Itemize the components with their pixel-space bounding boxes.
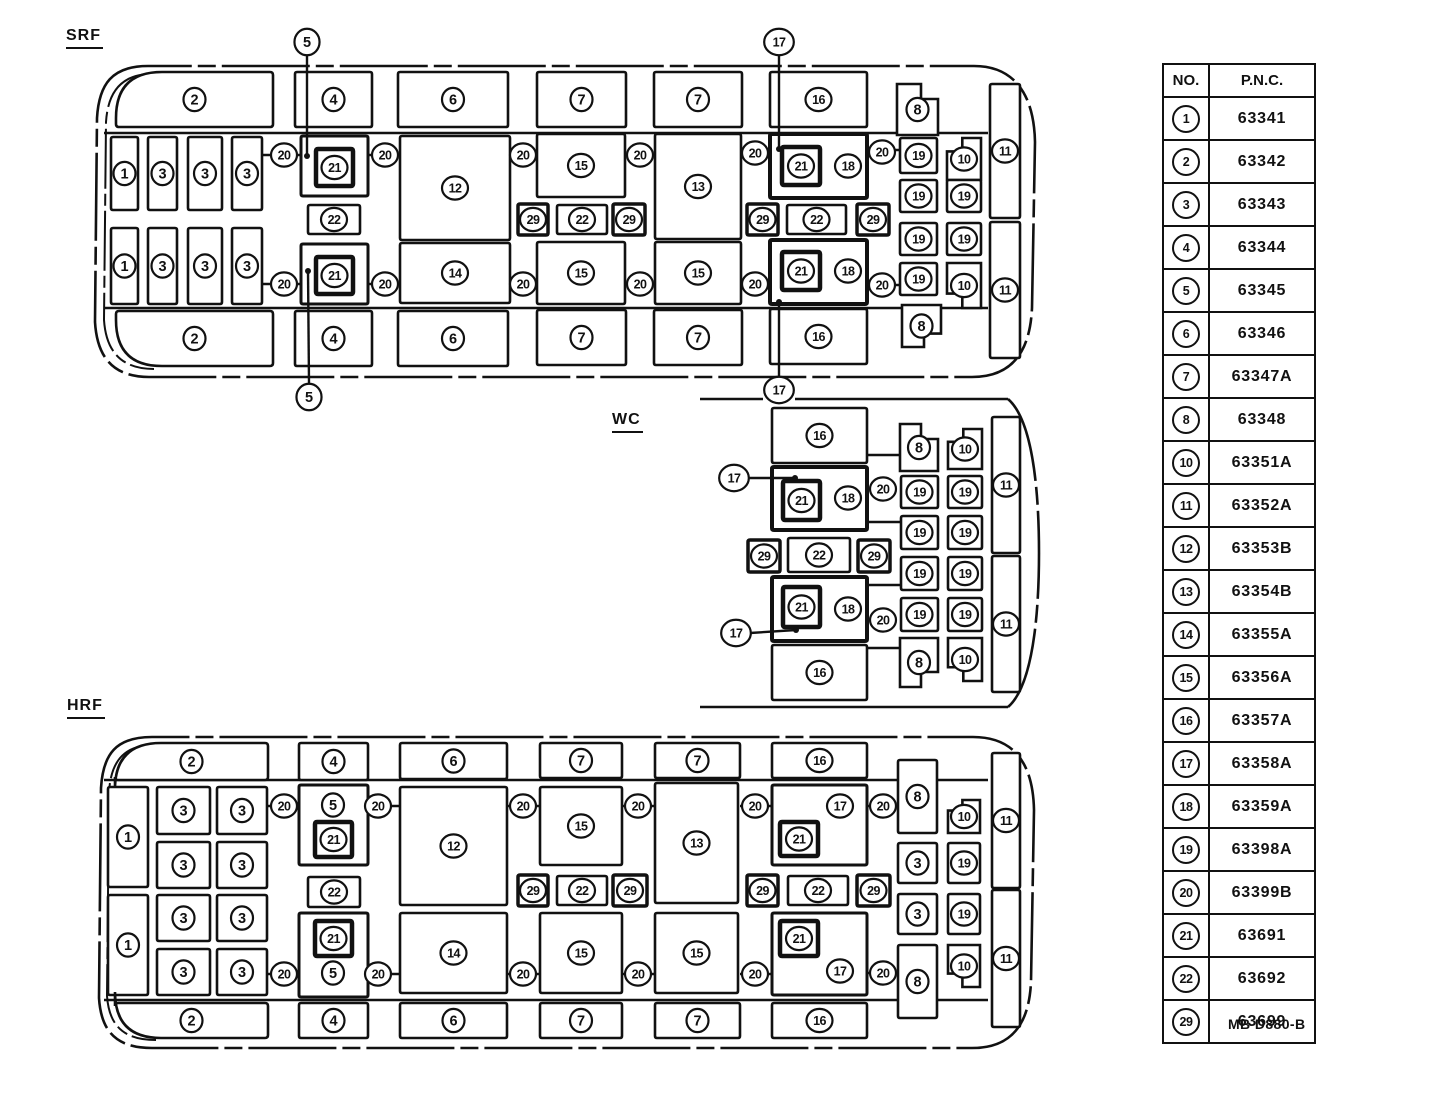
svg-text:6: 6 — [449, 1013, 457, 1029]
part-marker-12: 12 — [441, 834, 467, 857]
table-row: 263342 — [1163, 140, 1315, 183]
svg-text:5: 5 — [329, 966, 337, 982]
part-marker-8: 8 — [907, 785, 929, 808]
part-marker-16: 16 — [806, 325, 832, 348]
part-marker-2: 2 — [184, 88, 206, 111]
part-marker-21: 21 — [788, 259, 814, 282]
part-marker-3: 3 — [231, 906, 253, 929]
svg-text:22: 22 — [576, 884, 589, 898]
circled-number: 4 — [1172, 234, 1200, 262]
no-cell: 20 — [1163, 871, 1209, 914]
circled-number: 8 — [1172, 406, 1200, 434]
svg-text:19: 19 — [912, 272, 925, 286]
table-row: 2063399B — [1163, 871, 1315, 914]
part-marker-16: 16 — [807, 749, 833, 772]
pnc-cell: 63353B — [1209, 527, 1315, 570]
part-marker-19: 19 — [907, 562, 933, 585]
pnc-cell: 63346 — [1209, 312, 1315, 355]
svg-text:13: 13 — [690, 836, 703, 850]
part-marker-3: 3 — [231, 799, 253, 822]
part-marker-12: 12 — [442, 176, 468, 199]
svg-text:11: 11 — [999, 283, 1012, 297]
table-row: 163341 — [1163, 97, 1315, 140]
part-marker-2: 2 — [181, 1009, 203, 1032]
circled-number: 14 — [1172, 621, 1200, 649]
table-row: 763347A — [1163, 355, 1315, 398]
part-marker-20: 20 — [625, 962, 651, 985]
part-marker-22: 22 — [806, 543, 832, 566]
part-marker-21: 21 — [786, 827, 812, 850]
svg-text:20: 20 — [379, 148, 392, 162]
circled-number: 2 — [1172, 148, 1200, 176]
part-marker-19: 19 — [952, 521, 978, 544]
col-header-no: NO. — [1163, 64, 1209, 97]
circled-number: 21 — [1172, 922, 1200, 950]
part-marker-19: 19 — [907, 480, 933, 503]
part-marker-20: 20 — [271, 962, 297, 985]
part-marker-29: 29 — [860, 208, 886, 231]
panel-label-srf: SRF — [66, 27, 103, 49]
svg-text:21: 21 — [795, 494, 808, 508]
table-row: 1263353B — [1163, 527, 1315, 570]
svg-text:10: 10 — [958, 279, 971, 293]
table-row: 1763358A — [1163, 742, 1315, 785]
part-marker-2: 2 — [181, 750, 203, 773]
part-marker-11: 11 — [993, 612, 1019, 635]
part-marker-21: 21 — [788, 154, 814, 177]
svg-text:3: 3 — [913, 907, 921, 923]
part-marker-19: 19 — [952, 562, 978, 585]
table-row: 1663357A — [1163, 699, 1315, 742]
svg-text:19: 19 — [959, 567, 972, 581]
part-marker-15: 15 — [568, 941, 594, 964]
part-marker-20: 20 — [869, 140, 895, 163]
part-marker-15: 15 — [568, 154, 594, 177]
svg-text:3: 3 — [179, 858, 187, 874]
svg-text:11: 11 — [1000, 617, 1013, 631]
svg-text:6: 6 — [449, 331, 457, 347]
pnc-cell: 63356A — [1209, 656, 1315, 699]
part-marker-3: 3 — [173, 906, 195, 929]
part-marker-21: 21 — [322, 264, 348, 287]
circled-number: 7 — [1172, 363, 1200, 391]
part-marker-21: 21 — [789, 595, 815, 618]
no-cell: 5 — [1163, 269, 1209, 312]
svg-text:3: 3 — [179, 803, 187, 819]
no-cell: 3 — [1163, 183, 1209, 226]
svg-text:6: 6 — [449, 92, 457, 108]
part-marker-4: 4 — [323, 88, 345, 111]
pnc-cell: 63355A — [1209, 613, 1315, 656]
svg-text:14: 14 — [449, 266, 462, 280]
part-marker-3: 3 — [152, 254, 174, 277]
pnc-cell: 63352A — [1209, 484, 1315, 527]
part-marker-3: 3 — [173, 853, 195, 876]
part-marker-20: 20 — [271, 143, 297, 166]
no-cell: 18 — [1163, 785, 1209, 828]
part-marker-20: 20 — [365, 794, 391, 817]
part-marker-22: 22 — [321, 208, 347, 231]
svg-text:21: 21 — [795, 600, 808, 614]
svg-text:20: 20 — [278, 148, 291, 162]
svg-text:18: 18 — [842, 264, 855, 278]
part-marker-6: 6 — [443, 1009, 465, 1032]
svg-text:10: 10 — [958, 810, 971, 824]
svg-text:3: 3 — [243, 166, 251, 182]
svg-text:1: 1 — [124, 830, 132, 846]
part-marker-20: 20 — [365, 962, 391, 985]
circled-number: 20 — [1172, 879, 1200, 907]
part-marker-19: 19 — [952, 603, 978, 626]
svg-text:16: 16 — [813, 429, 826, 443]
svg-text:3: 3 — [179, 965, 187, 981]
svg-text:16: 16 — [813, 754, 826, 768]
pnc-cell: 63341 — [1209, 97, 1315, 140]
svg-text:19: 19 — [958, 189, 971, 203]
svg-text:8: 8 — [915, 655, 923, 671]
svg-text:21: 21 — [793, 932, 806, 946]
svg-text:19: 19 — [912, 189, 925, 203]
part-marker-29: 29 — [520, 208, 546, 231]
svg-text:7: 7 — [694, 92, 702, 108]
part-marker-3: 3 — [231, 853, 253, 876]
part-marker-20: 20 — [870, 794, 896, 817]
svg-text:12: 12 — [447, 839, 460, 853]
svg-text:19: 19 — [959, 485, 972, 499]
svg-text:21: 21 — [327, 833, 340, 847]
part-marker-29: 29 — [751, 544, 777, 567]
part-marker-20: 20 — [869, 273, 895, 296]
svg-text:22: 22 — [812, 884, 825, 898]
svg-text:16: 16 — [812, 330, 825, 344]
svg-text:22: 22 — [810, 213, 823, 227]
panel-label-wc: WC — [612, 411, 643, 433]
svg-text:21: 21 — [328, 269, 341, 283]
svg-text:20: 20 — [372, 799, 385, 813]
svg-text:7: 7 — [694, 330, 702, 346]
svg-text:2: 2 — [187, 1013, 195, 1029]
svg-text:7: 7 — [577, 753, 585, 769]
circled-number: 12 — [1172, 535, 1200, 563]
svg-text:20: 20 — [749, 277, 762, 291]
svg-text:29: 29 — [756, 213, 769, 227]
svg-text:20: 20 — [632, 967, 645, 981]
svg-text:29: 29 — [527, 213, 540, 227]
part-marker-20: 20 — [372, 272, 398, 295]
part-marker-6: 6 — [443, 749, 465, 772]
table-row: 2163691 — [1163, 914, 1315, 957]
svg-text:3: 3 — [238, 965, 246, 981]
part-marker-17: 17 — [721, 620, 751, 646]
wc-panel: 1621292229211681019191919191919198101111… — [700, 399, 1039, 707]
svg-text:7: 7 — [577, 1013, 585, 1029]
part-marker-10: 10 — [951, 274, 977, 297]
pnc-cell: 63358A — [1209, 742, 1315, 785]
part-marker-19: 19 — [951, 902, 977, 925]
svg-text:20: 20 — [517, 967, 530, 981]
part-marker-20: 20 — [510, 962, 536, 985]
no-cell: 22 — [1163, 957, 1209, 1000]
no-cell: 21 — [1163, 914, 1209, 957]
svg-text:3: 3 — [201, 259, 209, 275]
part-marker-3: 3 — [173, 960, 195, 983]
drawing-code: MB D880-B — [1228, 1016, 1306, 1032]
part-marker-22: 22 — [321, 880, 347, 903]
svg-text:17: 17 — [834, 799, 847, 813]
svg-text:7: 7 — [693, 753, 701, 769]
part-marker-17: 17 — [764, 29, 794, 55]
srf-panel: 2467716813332112151321191011222922292922… — [95, 29, 1035, 410]
svg-text:8: 8 — [913, 974, 921, 990]
part-marker-11: 11 — [993, 809, 1019, 832]
svg-text:17: 17 — [728, 471, 741, 485]
svg-text:17: 17 — [834, 964, 847, 978]
svg-text:10: 10 — [958, 152, 971, 166]
part-marker-11: 11 — [992, 278, 1018, 301]
part-marker-21: 21 — [322, 156, 348, 179]
svg-text:20: 20 — [877, 966, 890, 980]
svg-text:3: 3 — [238, 911, 246, 927]
svg-text:19: 19 — [912, 232, 925, 246]
svg-text:21: 21 — [795, 264, 808, 278]
table-row: 1363354B — [1163, 570, 1315, 613]
table-row: 1163352A — [1163, 484, 1315, 527]
pnc-cell: 63345 — [1209, 269, 1315, 312]
svg-text:15: 15 — [575, 819, 588, 833]
part-marker-20: 20 — [271, 794, 297, 817]
svg-text:29: 29 — [624, 884, 637, 898]
svg-text:20: 20 — [517, 799, 530, 813]
svg-text:3: 3 — [238, 858, 246, 874]
no-cell: 19 — [1163, 828, 1209, 871]
no-cell: 8 — [1163, 398, 1209, 441]
part-marker-21: 21 — [321, 927, 347, 950]
no-cell: 10 — [1163, 441, 1209, 484]
svg-text:20: 20 — [278, 277, 291, 291]
part-marker-15: 15 — [685, 261, 711, 284]
part-marker-20: 20 — [627, 272, 653, 295]
part-marker-19: 19 — [951, 227, 977, 250]
table-row: 1863359A — [1163, 785, 1315, 828]
svg-text:15: 15 — [690, 946, 703, 960]
svg-text:11: 11 — [999, 144, 1012, 158]
part-marker-6: 6 — [442, 88, 464, 111]
part-marker-10: 10 — [951, 805, 977, 828]
part-marker-5: 5 — [294, 29, 319, 55]
svg-text:10: 10 — [958, 959, 971, 973]
part-marker-8: 8 — [908, 651, 930, 674]
pnc-cell: 63348 — [1209, 398, 1315, 441]
part-marker-19: 19 — [951, 184, 977, 207]
svg-text:3: 3 — [158, 259, 166, 275]
svg-text:7: 7 — [693, 1013, 701, 1029]
part-marker-20: 20 — [510, 143, 536, 166]
svg-text:15: 15 — [692, 266, 705, 280]
svg-text:19: 19 — [958, 232, 971, 246]
svg-text:22: 22 — [813, 548, 826, 562]
svg-text:20: 20 — [877, 799, 890, 813]
svg-text:4: 4 — [329, 331, 337, 347]
pnc-cell: 63342 — [1209, 140, 1315, 183]
circled-number: 13 — [1172, 578, 1200, 606]
part-marker-20: 20 — [742, 141, 768, 164]
part-marker-16: 16 — [807, 1009, 833, 1032]
svg-text:29: 29 — [758, 549, 771, 563]
svg-text:3: 3 — [201, 166, 209, 182]
svg-text:3: 3 — [158, 166, 166, 182]
svg-text:5: 5 — [305, 390, 313, 406]
table-row: 563345 — [1163, 269, 1315, 312]
part-marker-2: 2 — [184, 327, 206, 350]
part-marker-20: 20 — [625, 794, 651, 817]
part-marker-16: 16 — [807, 424, 833, 447]
part-marker-8: 8 — [907, 970, 929, 993]
svg-text:21: 21 — [795, 159, 808, 173]
svg-text:1: 1 — [120, 259, 128, 275]
svg-text:15: 15 — [575, 946, 588, 960]
svg-text:2: 2 — [187, 754, 195, 770]
part-marker-11: 11 — [992, 139, 1018, 162]
part-marker-19: 19 — [906, 227, 932, 250]
part-marker-5: 5 — [322, 961, 344, 984]
part-marker-10: 10 — [951, 954, 977, 977]
circled-number: 3 — [1172, 191, 1200, 219]
svg-text:19: 19 — [959, 608, 972, 622]
svg-text:8: 8 — [917, 319, 925, 335]
svg-text:20: 20 — [517, 148, 530, 162]
svg-text:29: 29 — [527, 884, 540, 898]
svg-text:19: 19 — [912, 149, 925, 163]
svg-text:7: 7 — [577, 92, 585, 108]
circled-number: 18 — [1172, 793, 1200, 821]
pnc-cell: 63398A — [1209, 828, 1315, 871]
svg-text:21: 21 — [793, 832, 806, 846]
part-marker-29: 29 — [861, 879, 887, 902]
svg-text:20: 20 — [877, 613, 890, 627]
pnc-table: NO. P.N.C. 16334126334236334346334456334… — [1162, 63, 1316, 1044]
svg-text:4: 4 — [329, 754, 337, 770]
svg-text:20: 20 — [517, 277, 530, 291]
part-marker-29: 29 — [750, 208, 776, 231]
part-marker-3: 3 — [231, 960, 253, 983]
part-marker-29: 29 — [520, 879, 546, 902]
no-cell: 4 — [1163, 226, 1209, 269]
part-marker-14: 14 — [441, 941, 467, 964]
svg-text:11: 11 — [1000, 952, 1013, 966]
part-marker-19: 19 — [952, 480, 978, 503]
svg-text:5: 5 — [303, 35, 311, 51]
svg-text:4: 4 — [329, 92, 337, 108]
no-cell: 12 — [1163, 527, 1209, 570]
svg-text:17: 17 — [730, 626, 743, 640]
circled-number: 22 — [1172, 965, 1200, 993]
circled-number: 19 — [1172, 836, 1200, 864]
no-cell: 14 — [1163, 613, 1209, 656]
no-cell: 17 — [1163, 742, 1209, 785]
part-marker-20: 20 — [870, 961, 896, 984]
svg-text:3: 3 — [238, 803, 246, 819]
svg-text:13: 13 — [692, 180, 705, 194]
svg-text:22: 22 — [328, 213, 341, 227]
part-marker-15: 15 — [568, 814, 594, 837]
part-marker-7: 7 — [570, 749, 592, 772]
svg-text:1: 1 — [124, 938, 132, 954]
svg-text:19: 19 — [913, 608, 926, 622]
svg-text:11: 11 — [1000, 478, 1013, 492]
part-marker-17: 17 — [827, 959, 853, 982]
part-marker-20: 20 — [627, 143, 653, 166]
part-marker-10: 10 — [952, 437, 978, 460]
part-marker-7: 7 — [571, 88, 593, 111]
no-cell: 29 — [1163, 1000, 1209, 1043]
svg-text:8: 8 — [915, 440, 923, 456]
part-marker-7: 7 — [571, 326, 593, 349]
part-marker-5: 5 — [322, 793, 344, 816]
part-marker-8: 8 — [908, 436, 930, 459]
part-marker-19: 19 — [907, 603, 933, 626]
part-marker-20: 20 — [742, 962, 768, 985]
svg-text:19: 19 — [913, 485, 926, 499]
part-marker-20: 20 — [372, 143, 398, 166]
svg-text:3: 3 — [179, 911, 187, 927]
svg-text:18: 18 — [842, 159, 855, 173]
part-marker-1: 1 — [117, 825, 139, 848]
svg-text:19: 19 — [958, 907, 971, 921]
svg-text:16: 16 — [813, 666, 826, 680]
circled-number: 1 — [1172, 105, 1200, 133]
svg-text:2: 2 — [190, 331, 198, 347]
pnc-cell: 63399B — [1209, 871, 1315, 914]
table-row: 1463355A — [1163, 613, 1315, 656]
svg-text:29: 29 — [867, 213, 880, 227]
part-marker-17: 17 — [719, 465, 749, 491]
svg-text:19: 19 — [913, 526, 926, 540]
svg-text:22: 22 — [328, 885, 341, 899]
pnc-cell: 63357A — [1209, 699, 1315, 742]
svg-text:20: 20 — [379, 277, 392, 291]
part-marker-22: 22 — [805, 879, 831, 902]
part-marker-17: 17 — [827, 794, 853, 817]
svg-text:20: 20 — [749, 799, 762, 813]
part-marker-3: 3 — [236, 162, 258, 185]
svg-text:21: 21 — [327, 932, 340, 946]
part-marker-3: 3 — [194, 254, 216, 277]
part-marker-3: 3 — [236, 254, 258, 277]
pnc-cell: 63347A — [1209, 355, 1315, 398]
part-marker-3: 3 — [907, 851, 929, 874]
part-marker-18: 18 — [835, 597, 861, 620]
part-marker-7: 7 — [570, 1009, 592, 1032]
svg-text:17: 17 — [773, 383, 786, 397]
part-marker-7: 7 — [687, 1009, 709, 1032]
part-marker-13: 13 — [685, 175, 711, 198]
svg-text:10: 10 — [959, 653, 972, 667]
part-marker-19: 19 — [906, 144, 932, 167]
circled-number: 11 — [1172, 492, 1200, 520]
svg-text:14: 14 — [447, 946, 460, 960]
part-marker-16: 16 — [807, 661, 833, 684]
svg-text:20: 20 — [632, 799, 645, 813]
part-marker-1: 1 — [117, 933, 139, 956]
svg-text:15: 15 — [575, 159, 588, 173]
part-marker-15: 15 — [684, 941, 710, 964]
svg-text:18: 18 — [842, 491, 855, 505]
table-row: 1063351A — [1163, 441, 1315, 484]
svg-text:19: 19 — [959, 526, 972, 540]
part-marker-29: 29 — [861, 544, 887, 567]
part-marker-19: 19 — [906, 184, 932, 207]
part-marker-19: 19 — [907, 521, 933, 544]
